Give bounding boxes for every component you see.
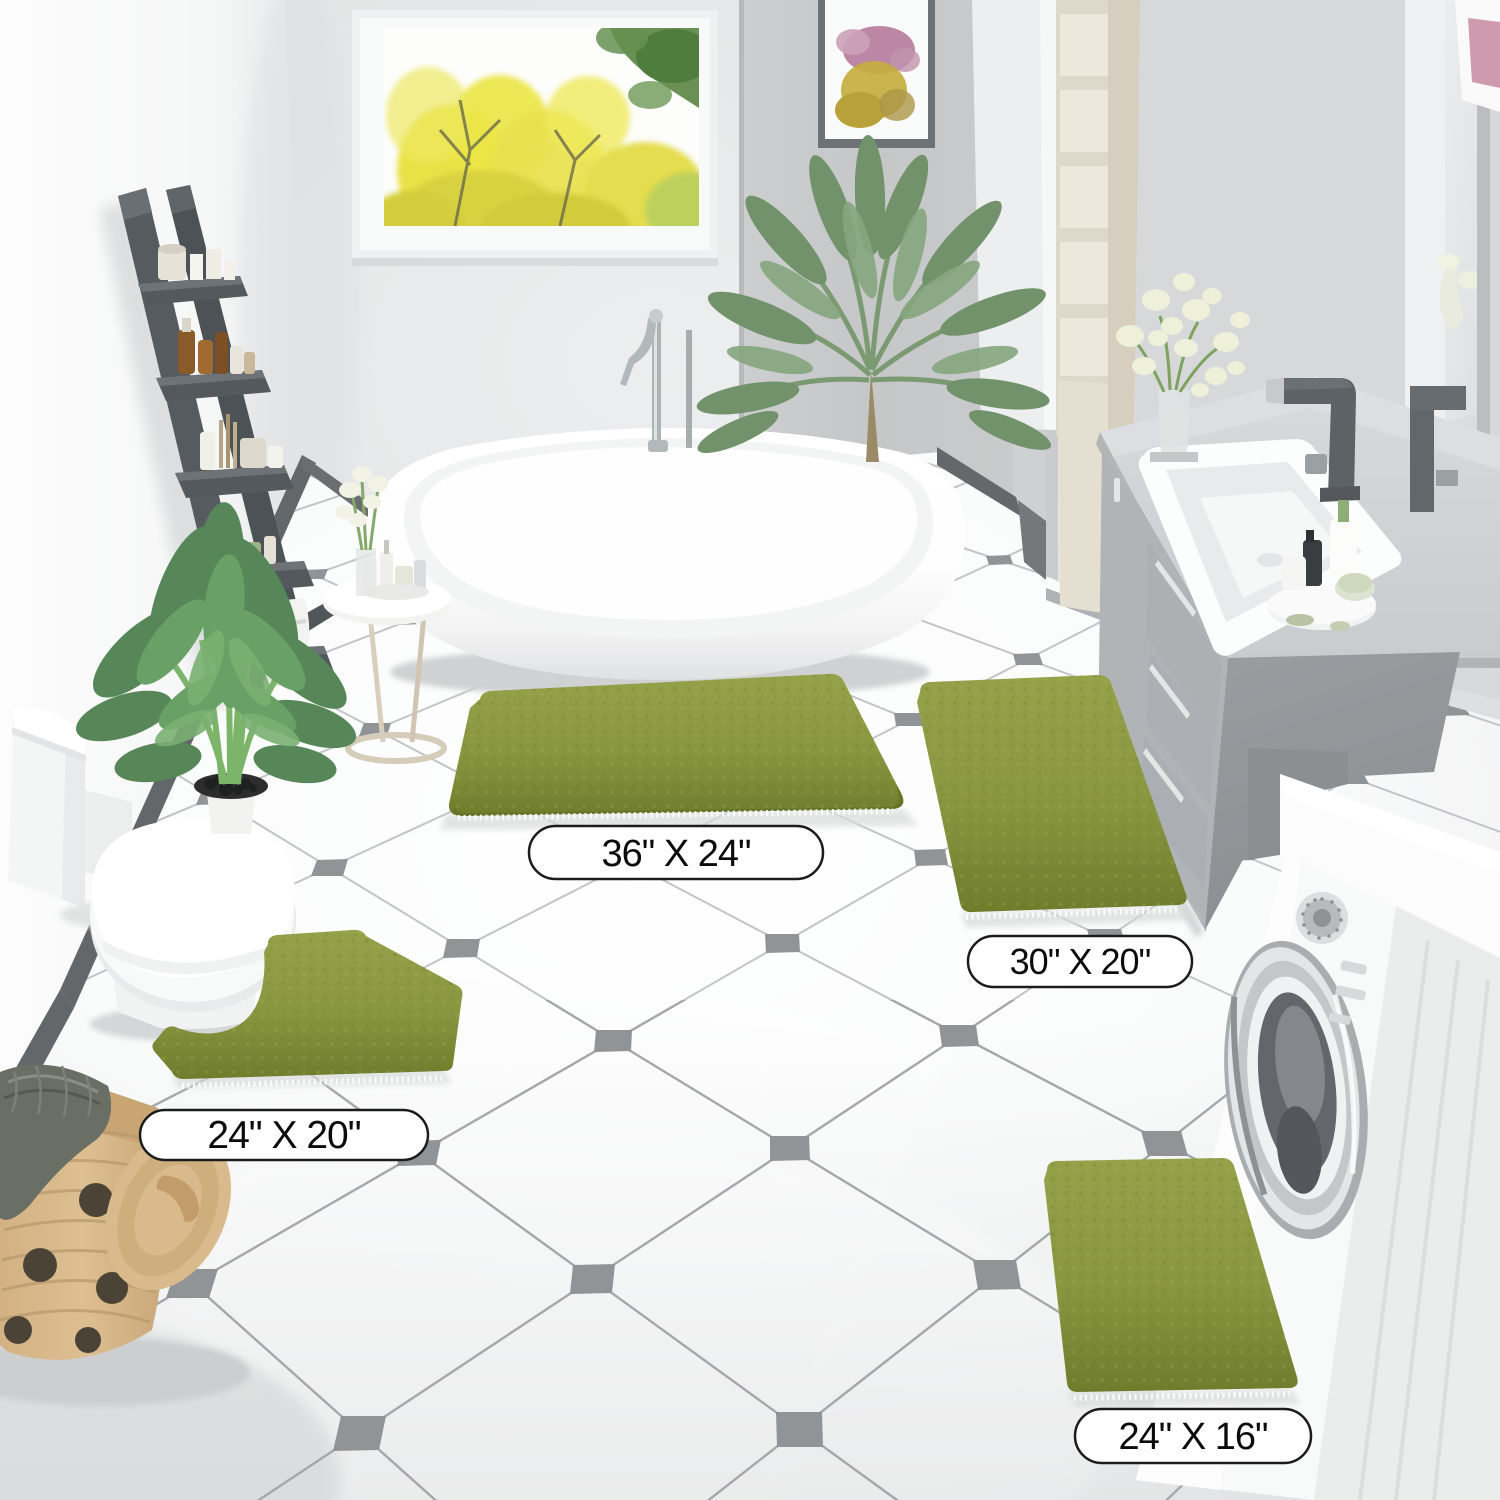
svg-text:24" X 20": 24" X 20" (207, 1114, 360, 1157)
svg-text:36" X 24": 36" X 24" (602, 833, 751, 875)
svg-text:24" X 16": 24" X 16" (1119, 1416, 1268, 1458)
svg-text:30" X 20": 30" X 20" (1010, 941, 1151, 982)
